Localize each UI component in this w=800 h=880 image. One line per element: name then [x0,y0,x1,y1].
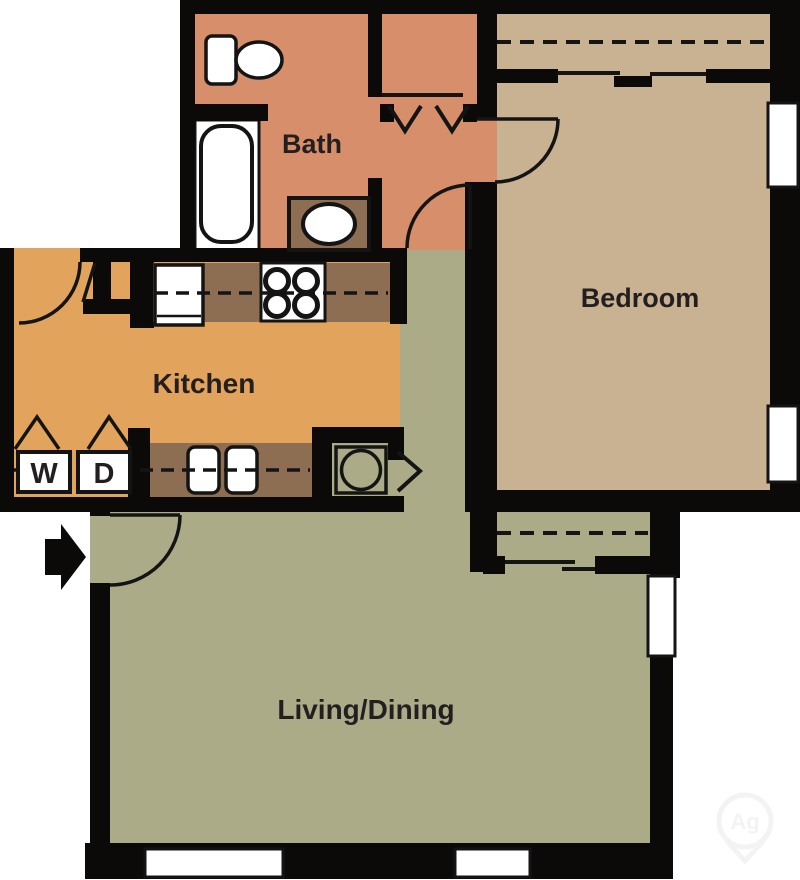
wall-segment [368,0,382,97]
wall-segment [465,490,800,512]
sliding-door-panel [614,76,652,87]
wall-segment [0,497,315,512]
closet-edge-line [382,93,463,97]
wall-segment [90,502,110,516]
toilet-bowl [236,42,282,78]
sliding-door-jamb [483,556,505,574]
wall-segment [390,248,407,324]
bath-label: Bath [282,129,342,159]
entry-arrow-icon [45,524,86,590]
bedroom-label: Bedroom [581,283,700,313]
bathtub [201,126,252,242]
stove-burner [295,270,318,293]
kitchen-label: Kitchen [153,368,256,399]
wall-segment [180,0,195,258]
wall-segment [0,248,14,512]
wall-segment [130,248,154,328]
vanity-sink [303,204,355,244]
sliding-door-panel [595,556,652,574]
watermark-logo: Ag [719,795,771,861]
wall-segment [90,583,110,865]
living-window-east [648,576,675,656]
toilet-tank [206,36,236,84]
stove-burner [266,270,289,293]
watermark-text: Ag [730,809,759,834]
floor-plan: W D Bath Bedroom Kitchen Living/ [0,0,800,880]
bedroom-window-upper [768,103,798,187]
dryer-label: D [94,458,115,490]
sliding-door-jamb [497,69,558,83]
stove-burner [266,294,289,317]
wall-segment [312,496,404,512]
wall-segment [650,510,680,578]
stove-burner [295,294,318,317]
bedroom-window-lower [768,406,798,482]
living-window-south-large [145,849,283,877]
washer-label: W [30,458,58,490]
sliding-door-jamb [706,69,770,83]
wall-segment [195,104,268,121]
living-label: Living/Dining [277,694,454,725]
wall-segment [650,654,673,866]
living-window-south-small [455,849,530,877]
watermark-pin-tail [726,840,764,861]
wall-segment [477,0,497,119]
